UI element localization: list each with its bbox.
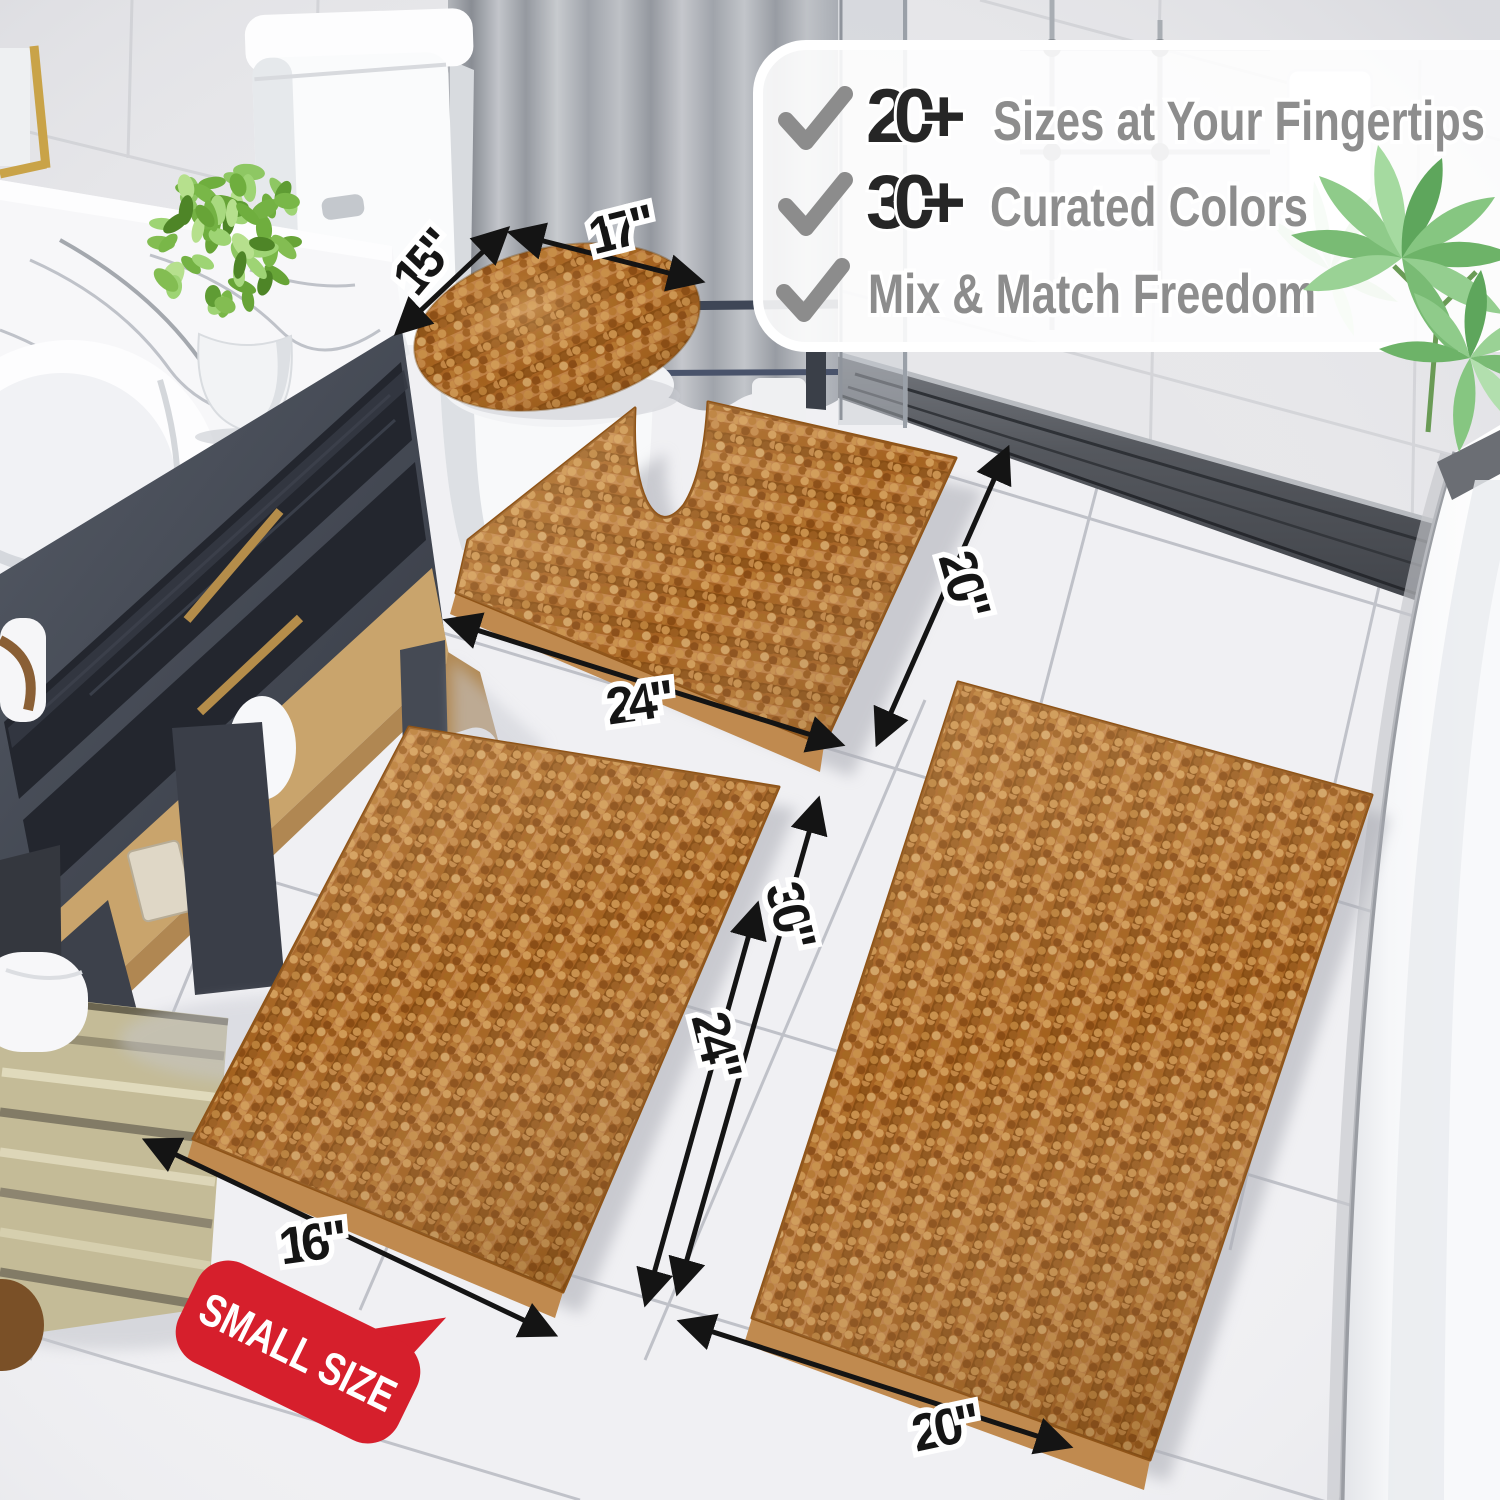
svg-text:20+: 20+	[866, 74, 966, 159]
svg-text:Sizes at Your Fingertips: Sizes at Your Fingertips	[993, 89, 1485, 152]
svg-text:Mix & Match Freedom: Mix & Match Freedom	[868, 262, 1316, 325]
svg-text:16": 16"	[275, 1210, 350, 1277]
svg-text:30+: 30+	[866, 160, 966, 245]
svg-text:Curated Colors: Curated Colors	[990, 175, 1308, 238]
svg-text:24": 24"	[602, 670, 677, 737]
